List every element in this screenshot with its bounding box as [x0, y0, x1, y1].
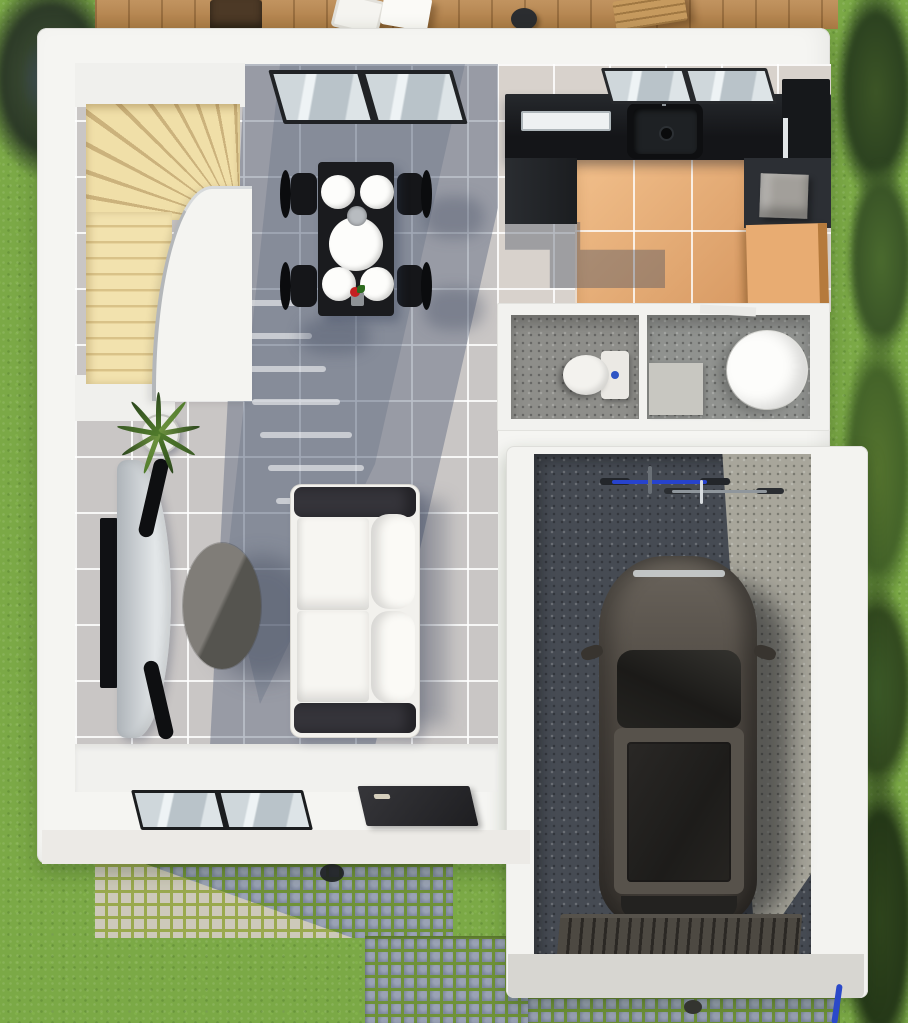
- appliance-cube: [759, 173, 809, 219]
- kitchen-base-cabinet: [505, 158, 577, 224]
- window-pane: [605, 71, 690, 101]
- bike-frame-silver: [672, 490, 767, 493]
- chair-back: [421, 170, 432, 218]
- floorplan-render: [0, 0, 908, 1023]
- shower-mat: [649, 363, 703, 415]
- chair-back: [280, 170, 291, 218]
- deck-planter-box: [210, 0, 262, 30]
- plate: [321, 175, 355, 209]
- railing-light-dash: [252, 399, 340, 405]
- car-sunroof: [627, 742, 731, 882]
- dining-chair: [392, 262, 426, 310]
- stoop-light: [320, 864, 344, 882]
- window-pane: [221, 793, 309, 827]
- wood-deck: [95, 0, 838, 29]
- dining-chair: [286, 262, 320, 310]
- sofa-armrest-top: [294, 487, 416, 517]
- deck-stool: [511, 8, 537, 30]
- chair-seat: [291, 173, 317, 215]
- sofa-back-cushion: [371, 514, 415, 609]
- chair-seat: [397, 173, 423, 215]
- dining-chair: [392, 170, 426, 218]
- bike-frame-blue: [612, 480, 707, 484]
- dining-chair: [286, 170, 320, 218]
- round-tub: [727, 331, 807, 409]
- centerpiece-leaves: [357, 285, 365, 293]
- plate: [360, 175, 394, 209]
- railing-light-dash: [268, 465, 364, 471]
- front-door: [357, 786, 478, 826]
- driveway-drain: [684, 1000, 702, 1014]
- car-rear-light-strip: [633, 570, 725, 577]
- railing-light-dash: [244, 366, 326, 372]
- chair-seat: [291, 265, 317, 307]
- chair-back: [280, 262, 291, 310]
- bike-handlebar: [648, 466, 652, 494]
- chair-shadow: [300, 318, 370, 354]
- car-rear-window: [617, 650, 741, 728]
- chair-shadow: [424, 196, 484, 238]
- tall-cabinet-fridge: [782, 79, 830, 167]
- wall-above-stairs: [75, 63, 245, 107]
- front-wall-face: [42, 830, 530, 864]
- window-pane: [135, 793, 223, 827]
- toilet-flush-button: [611, 371, 619, 379]
- plate: [360, 267, 394, 301]
- sofa-armrest-bottom: [294, 703, 416, 733]
- door-glass-pane: [365, 74, 463, 120]
- kitchen-window: [601, 68, 777, 104]
- sofa-seat-cushion: [297, 611, 369, 702]
- entry-floor: [75, 744, 498, 792]
- chair-seat: [397, 265, 423, 307]
- sofa-seat-cushion: [297, 518, 369, 610]
- door-glass-pane: [273, 74, 371, 120]
- window-pane: [688, 71, 773, 101]
- front-window: [131, 790, 313, 830]
- toilet-bowl: [563, 355, 609, 395]
- garage-apron: [508, 954, 864, 998]
- sofa-back-cushion: [371, 611, 415, 703]
- orange-base-cabinet: [746, 223, 829, 314]
- table-bowl: [347, 206, 367, 226]
- chair-back: [421, 262, 432, 310]
- bike-handlebar: [700, 480, 703, 504]
- stainless-strip: [521, 111, 611, 131]
- sink-drain: [659, 126, 674, 141]
- door-handle: [373, 794, 390, 799]
- patio-sliding-door: [268, 70, 467, 124]
- chair-shadow: [424, 288, 484, 330]
- railing-light-dash: [260, 432, 352, 438]
- coffee-table: [183, 543, 261, 669]
